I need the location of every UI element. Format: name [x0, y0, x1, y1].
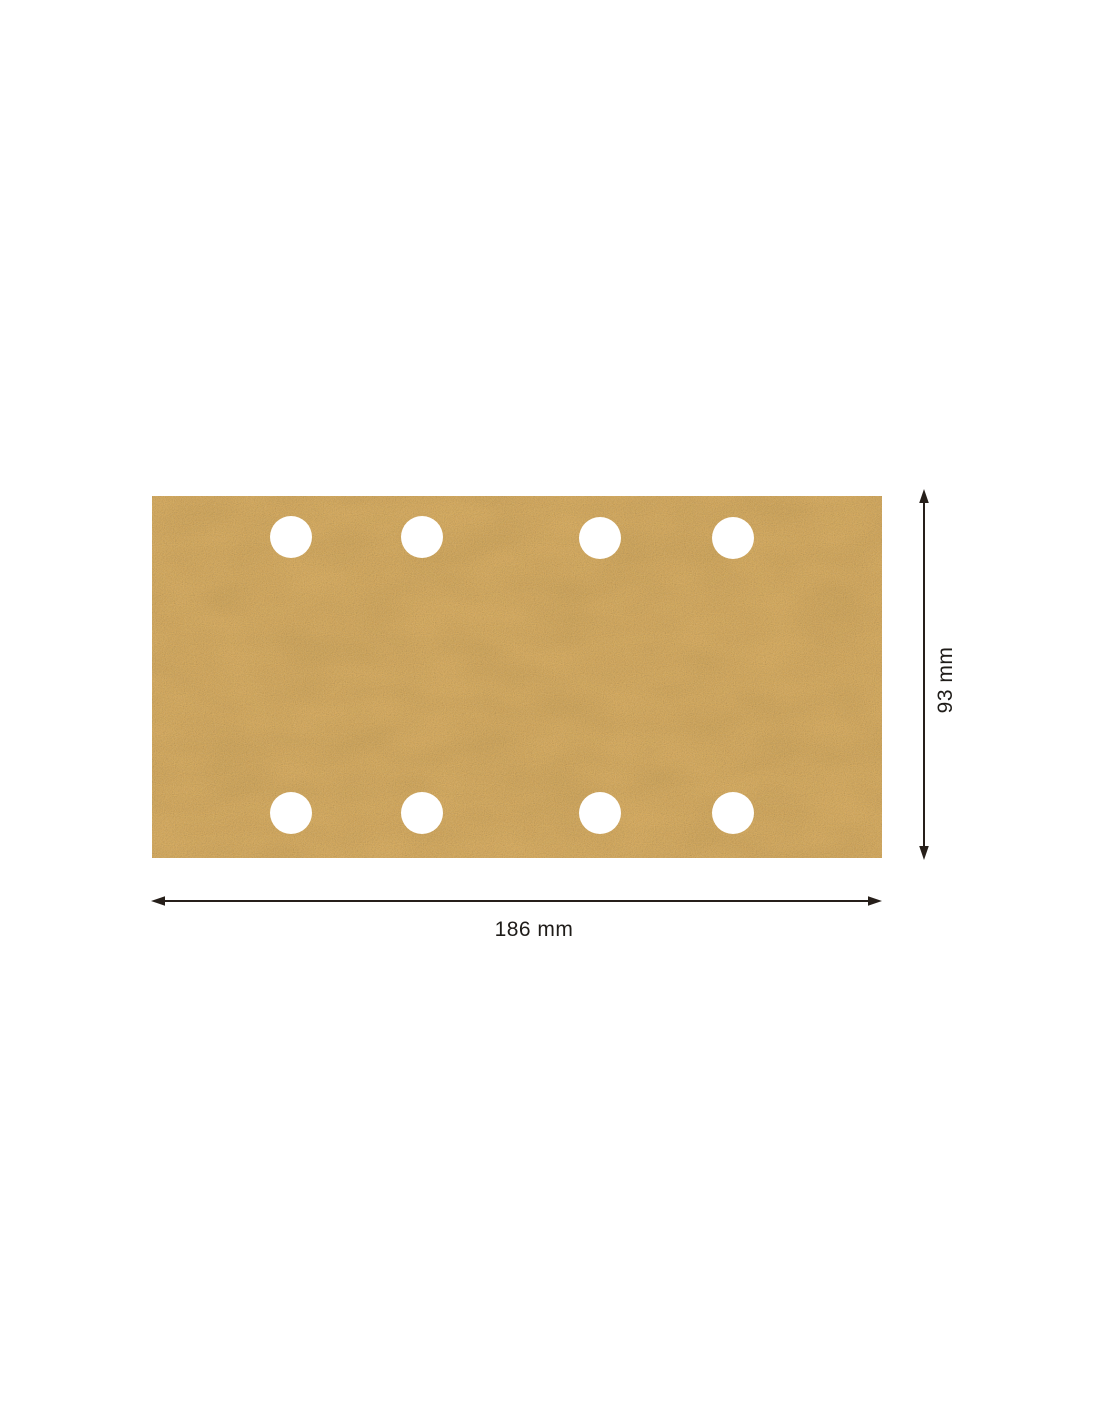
- sheet-hole: [712, 517, 754, 559]
- height-dimension: 93 mm: [919, 489, 957, 860]
- width-dimension-label: 186 mm: [495, 918, 574, 941]
- product-dimension-diagram: 93 mm 186 mm: [0, 0, 1100, 1422]
- sheet-hole: [712, 792, 754, 834]
- sanding-sheet-surface: [152, 496, 882, 858]
- sheet-hole: [401, 516, 443, 558]
- sheet-hole: [401, 792, 443, 834]
- diagram-svg: 93 mm 186 mm: [0, 0, 1100, 1422]
- width-dimension: 186 mm: [151, 896, 882, 941]
- sheet-hole: [579, 792, 621, 834]
- sheet-hole: [579, 517, 621, 559]
- sanding-sheet: [152, 496, 882, 858]
- sheet-hole: [270, 516, 312, 558]
- arrowhead-right-icon: [868, 896, 882, 906]
- sheet-hole: [270, 792, 312, 834]
- height-dimension-label: 93 mm: [934, 647, 957, 714]
- arrowhead-left-icon: [151, 896, 165, 906]
- arrowhead-down-icon: [919, 846, 929, 860]
- arrowhead-up-icon: [919, 489, 929, 503]
